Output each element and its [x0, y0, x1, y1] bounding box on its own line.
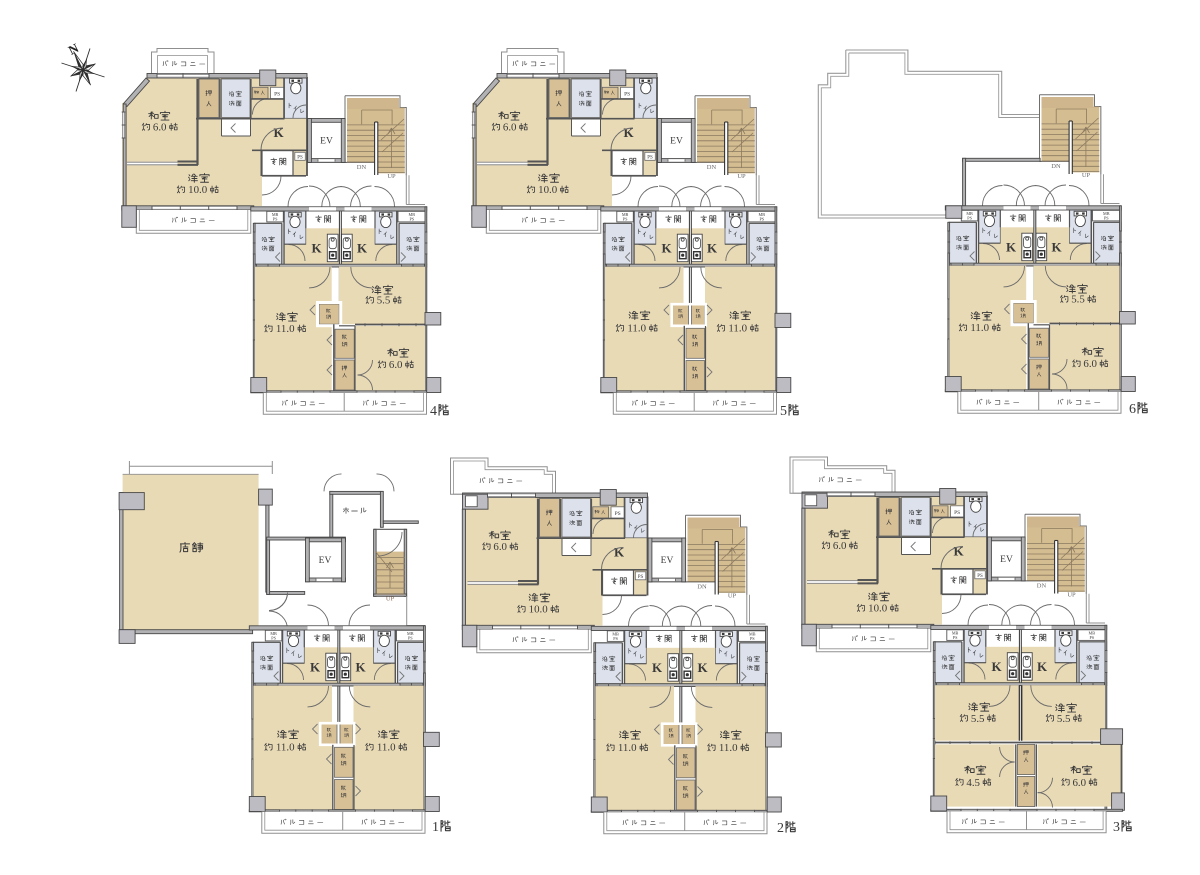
svg-text:4.5: 4.5 — [966, 777, 980, 789]
svg-text:11.0: 11.0 — [276, 742, 295, 754]
svg-text:K: K — [623, 125, 634, 140]
svg-text:DN: DN — [707, 164, 717, 171]
svg-text:UP: UP — [1082, 172, 1091, 179]
svg-text:6.0: 6.0 — [153, 122, 167, 134]
svg-text:6.0: 6.0 — [833, 540, 847, 552]
svg-text:K: K — [355, 660, 366, 675]
svg-text:PS: PS — [954, 510, 960, 516]
svg-text:PS: PS — [409, 216, 414, 221]
svg-text:K: K — [707, 241, 718, 256]
svg-text:11.0: 11.0 — [719, 742, 738, 754]
svg-text:UP: UP — [1067, 592, 1076, 599]
svg-text:2: 2 — [777, 821, 784, 836]
svg-text:PS: PS — [977, 574, 983, 579]
svg-text:6.0: 6.0 — [389, 359, 403, 371]
svg-text:11.0: 11.0 — [970, 322, 989, 334]
svg-text:K: K — [311, 241, 322, 256]
svg-text:PS: PS — [1089, 635, 1094, 640]
svg-text:EV: EV — [670, 137, 683, 147]
svg-text:PS: PS — [967, 215, 972, 220]
svg-text:5.5: 5.5 — [1071, 294, 1085, 306]
svg-text:K: K — [357, 241, 368, 256]
svg-text:PS: PS — [750, 636, 755, 641]
svg-text:K: K — [652, 660, 663, 675]
svg-text:10.0: 10.0 — [529, 604, 549, 616]
svg-text:PS: PS — [271, 635, 276, 640]
svg-text:PS: PS — [297, 155, 303, 160]
svg-text:UP: UP — [387, 173, 396, 180]
svg-text:DN: DN — [357, 164, 367, 171]
svg-text:PS: PS — [623, 216, 628, 221]
svg-text:4: 4 — [430, 404, 437, 419]
svg-text:6.0: 6.0 — [1072, 777, 1086, 789]
svg-text:K: K — [991, 659, 1002, 674]
svg-text:K: K — [697, 660, 708, 675]
svg-text:6.0: 6.0 — [493, 541, 507, 553]
svg-text:K: K — [1037, 659, 1048, 674]
svg-text:EV: EV — [661, 556, 674, 566]
svg-text:UP: UP — [728, 593, 737, 600]
svg-text:PS: PS — [624, 91, 630, 97]
svg-text:PS: PS — [408, 635, 413, 640]
svg-text:DN: DN — [697, 583, 707, 590]
svg-text:5.5: 5.5 — [1057, 713, 1071, 725]
svg-text:11.0: 11.0 — [728, 323, 747, 335]
svg-text:K: K — [953, 544, 964, 559]
svg-text:UP: UP — [737, 173, 746, 180]
svg-text:10.0: 10.0 — [868, 603, 888, 615]
svg-text:11.0: 11.0 — [276, 323, 295, 335]
svg-text:PS: PS — [613, 636, 618, 641]
svg-text:6.0: 6.0 — [503, 122, 517, 134]
svg-text:UP: UP — [386, 596, 395, 603]
svg-text:N: N — [66, 40, 82, 58]
svg-text:10.0: 10.0 — [188, 184, 208, 196]
svg-text:PS: PS — [1104, 215, 1109, 220]
svg-text:3: 3 — [1113, 820, 1120, 835]
svg-text:EV: EV — [320, 137, 333, 147]
svg-text:EV: EV — [319, 556, 332, 566]
svg-text:PS: PS — [615, 511, 621, 517]
svg-text:PS: PS — [759, 216, 764, 221]
svg-text:K: K — [310, 660, 321, 675]
svg-text:K: K — [614, 545, 625, 560]
svg-text:11.0: 11.0 — [377, 742, 396, 754]
svg-text:6: 6 — [1129, 402, 1136, 417]
svg-text:PS: PS — [273, 216, 278, 221]
svg-text:DN: DN — [1051, 163, 1061, 170]
svg-text:1: 1 — [432, 820, 439, 835]
svg-text:11.0: 11.0 — [627, 323, 646, 335]
svg-text:K: K — [661, 241, 672, 256]
svg-text:PS: PS — [274, 91, 280, 97]
svg-text:5: 5 — [780, 404, 787, 419]
svg-text:PS: PS — [638, 575, 644, 580]
svg-text:K: K — [1006, 240, 1017, 255]
svg-text:6.0: 6.0 — [1083, 358, 1097, 370]
svg-text:5.5: 5.5 — [377, 295, 391, 307]
svg-text:PS: PS — [647, 155, 653, 160]
svg-text:PS: PS — [953, 635, 958, 640]
svg-text:5.5: 5.5 — [971, 713, 985, 725]
svg-text:K: K — [273, 125, 284, 140]
svg-text:11.0: 11.0 — [618, 742, 637, 754]
svg-text:EV: EV — [1000, 555, 1013, 565]
svg-text:K: K — [1051, 240, 1062, 255]
svg-text:DN: DN — [1037, 582, 1047, 589]
svg-text:10.0: 10.0 — [538, 184, 558, 196]
